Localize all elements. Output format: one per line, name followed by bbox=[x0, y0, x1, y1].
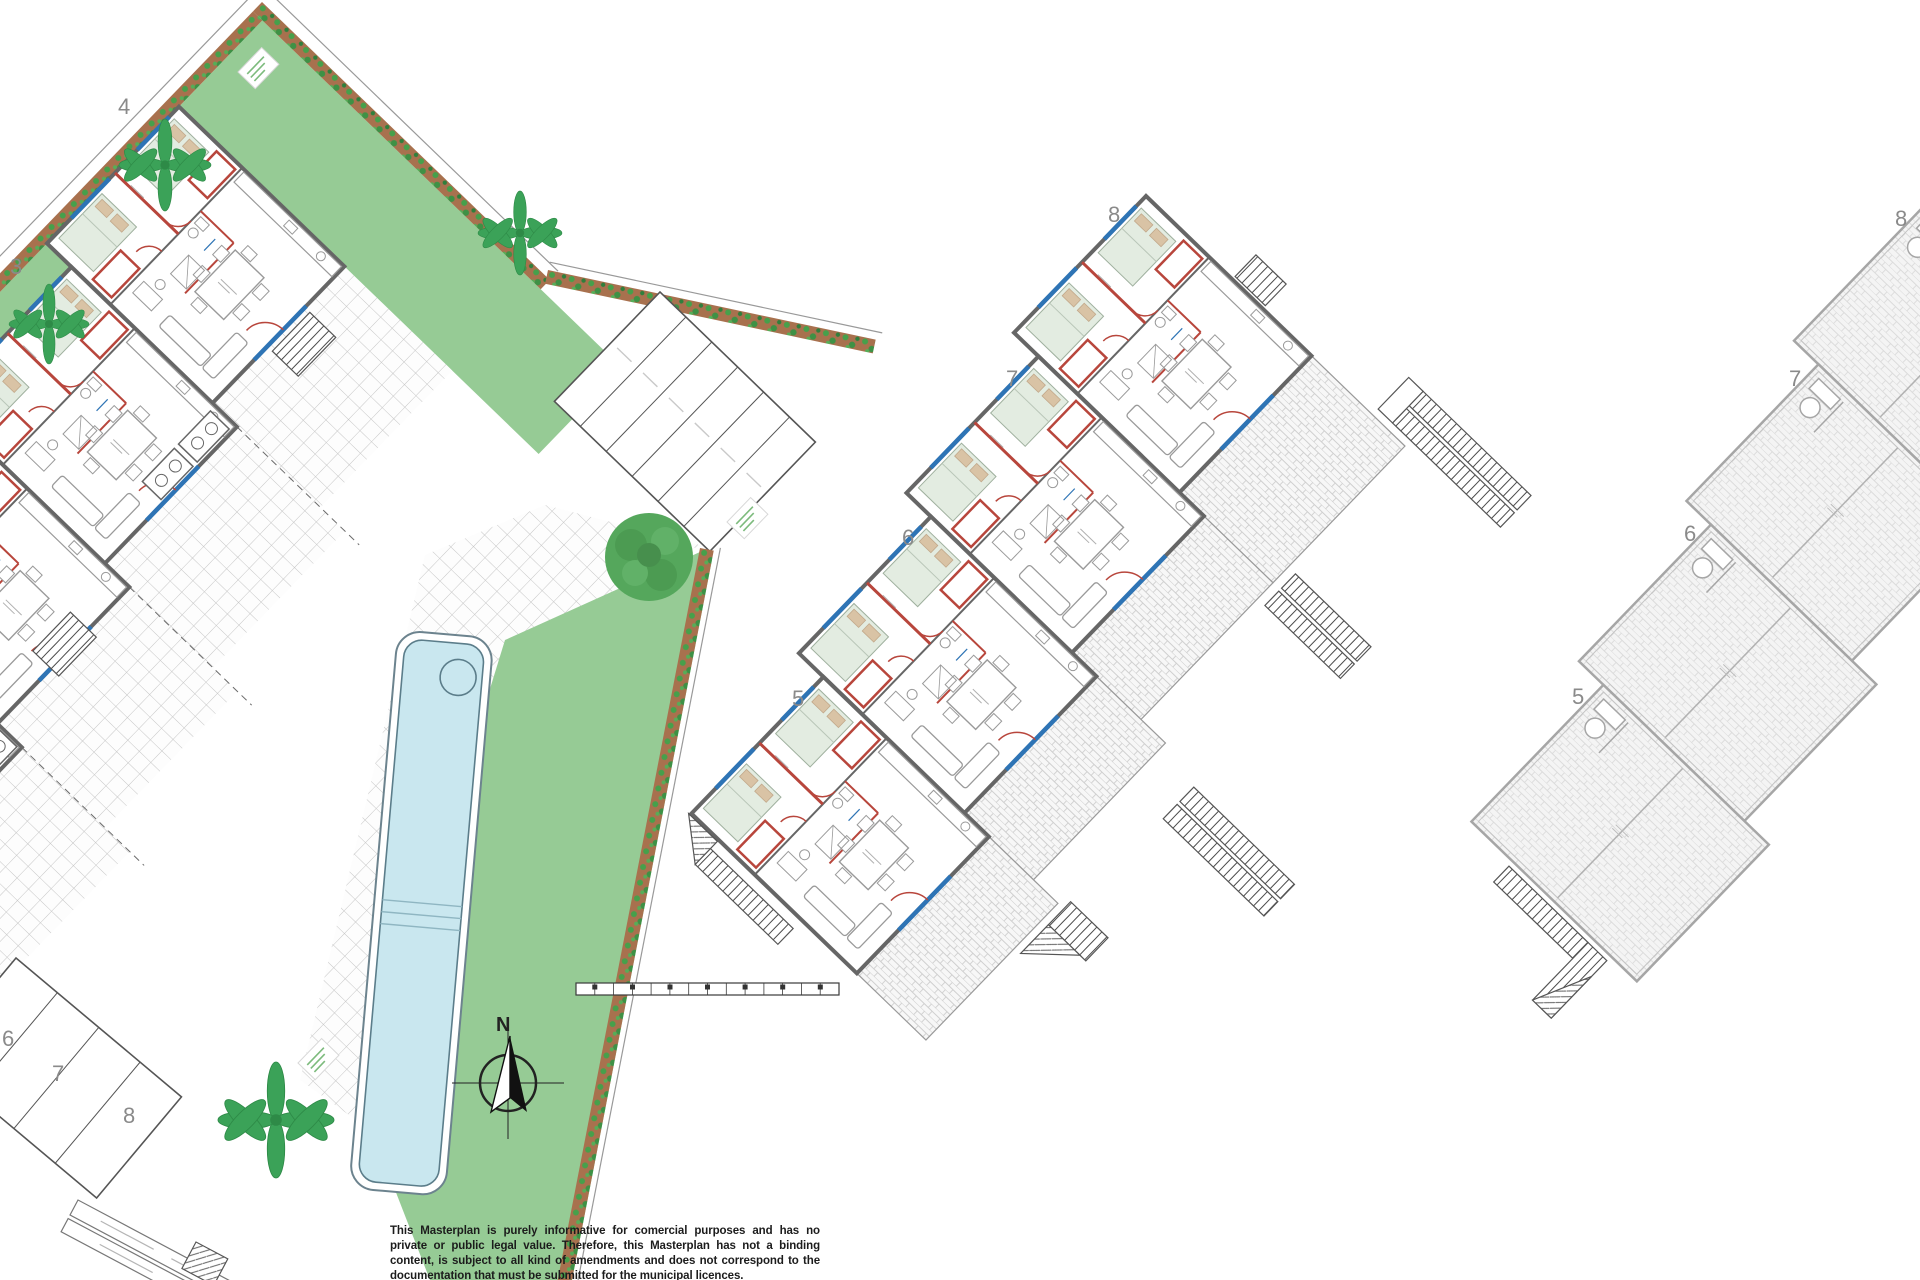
stairs-mid bbox=[1265, 574, 1371, 679]
parking-label-8: 8 bbox=[123, 1105, 135, 1127]
north-label: N bbox=[496, 1014, 511, 1037]
stairs-long-double bbox=[1378, 377, 1531, 527]
unit-label-middle-8: 8 bbox=[1108, 204, 1120, 226]
unit-label-middle-6: 6 bbox=[902, 527, 914, 549]
hedge-border-northeast bbox=[545, 262, 882, 354]
unit-label-right-8: 8 bbox=[1895, 208, 1907, 230]
disclaimer-text: This Masterplan is purely informative fo… bbox=[390, 1224, 820, 1280]
parking-area-south bbox=[0, 958, 181, 1198]
plot-label-left-4: 4 bbox=[118, 96, 130, 118]
parking-label-7: 7 bbox=[52, 1063, 64, 1085]
unit-label-middle-7: 7 bbox=[1006, 368, 1018, 390]
unit-label-right-6: 6 bbox=[1684, 523, 1696, 545]
siteplan-drawing bbox=[0, 0, 1920, 1280]
unit-label-right-5: 5 bbox=[1572, 686, 1584, 708]
garden-tree-icon bbox=[605, 513, 693, 601]
parking-label-6: 6 bbox=[2, 1028, 14, 1050]
plot-label-left-3: 3 bbox=[10, 256, 22, 278]
middle-apartment-building bbox=[594, 159, 1602, 1174]
masterplan-canvas: N 4 3 6 7 8 8 7 6 5 8 7 6 5 This Masterp… bbox=[0, 0, 1920, 1280]
unit-label-middle-5: 5 bbox=[792, 688, 804, 710]
right-roof-building bbox=[1338, 204, 1920, 1043]
stairs-bottom-double bbox=[1163, 787, 1294, 916]
unit-label-right-7: 7 bbox=[1789, 368, 1801, 390]
scale-bar bbox=[576, 983, 839, 995]
